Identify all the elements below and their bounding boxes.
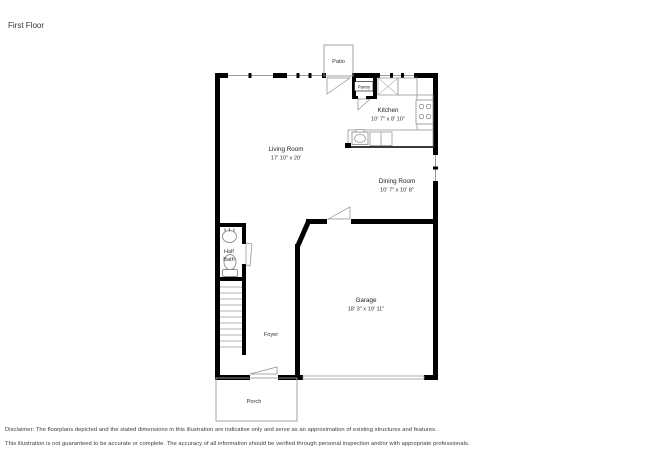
patio-label: Patio [332,59,345,65]
wall-right [433,73,438,380]
disclaimer-line-2: This illustration is not guaranteed to b… [5,441,470,447]
window-icons [228,76,436,182]
disclaimer-line-1: Disclaimer: The floorplans depicted and … [5,427,437,433]
kitchen-label: Kitchen [377,107,399,114]
wall-openings [228,73,438,380]
patio-door-swing-icon [327,78,350,94]
garage-diagonal-wall [298,222,309,247]
garage-label: Garage [355,297,377,304]
stairs-wall [242,281,246,355]
bath-sink-icon [223,231,237,243]
garage-entry-opening [327,219,351,224]
garage-top-wall [306,219,438,224]
stove-icon [416,100,433,124]
dining-room-dims: 10' 7" x 10' 8" [380,188,414,194]
upper-cabinet [398,78,417,95]
floor-plan-svg: Living Room 17' 10" x 20' Kitchen 10' 7"… [0,0,650,460]
porch-door-swing-icon [250,367,277,374]
pantry-door-swing-icon [358,99,370,110]
garage-entry-door-swing-icon [328,207,350,219]
garage-dims: 18' 3" x 19' 11" [348,307,384,313]
bath-bottom-wall [220,277,246,281]
floorplan-page: First Floor [0,0,650,460]
garage-door-icon [303,376,424,379]
living-room-dims: 17' 10" x 20' [271,156,301,162]
counter-end-stub [345,143,351,148]
interior-walls [220,219,438,380]
stairs [220,287,242,347]
counter-halfwall [348,146,433,148]
porch-label: Porch [247,399,262,405]
kitchen-dims: 10' 7" x 8' 10" [371,117,405,123]
foyer-label: Foyer [264,332,278,338]
half-bath-label-line2: Bath [223,257,235,263]
toilet-tank [223,270,238,277]
half-bath-label-line1: Half [224,249,234,255]
living-room-label: Living Room [269,146,304,153]
wall-left [215,73,220,380]
bath-right-wall-upper [242,223,246,244]
pantry-label: Pantry [358,85,371,90]
bath-door-swing-icon [246,243,252,266]
garage-left-wall [295,244,300,380]
dining-room-label: Dining Room [379,178,415,185]
kitchen-faucet-icon [356,130,364,133]
